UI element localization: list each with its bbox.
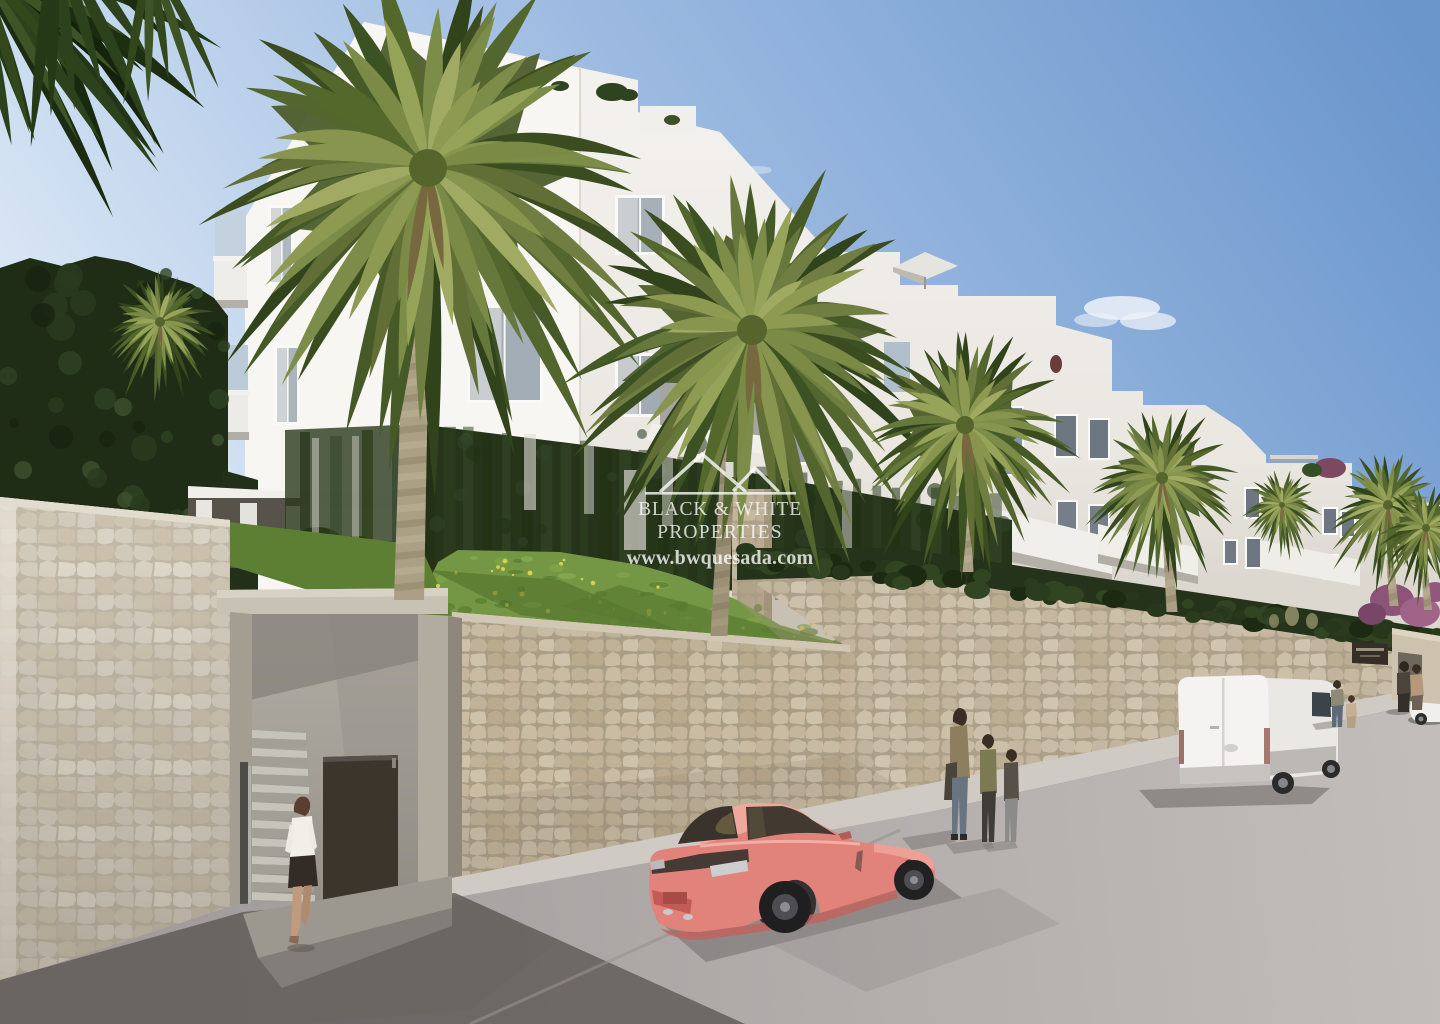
svg-text:www.bwquesada.com: www.bwquesada.com — [627, 547, 814, 569]
svg-text:PROPERTIES: PROPERTIES — [657, 522, 783, 543]
svg-text:BLACK & WHITE: BLACK & WHITE — [638, 499, 802, 520]
